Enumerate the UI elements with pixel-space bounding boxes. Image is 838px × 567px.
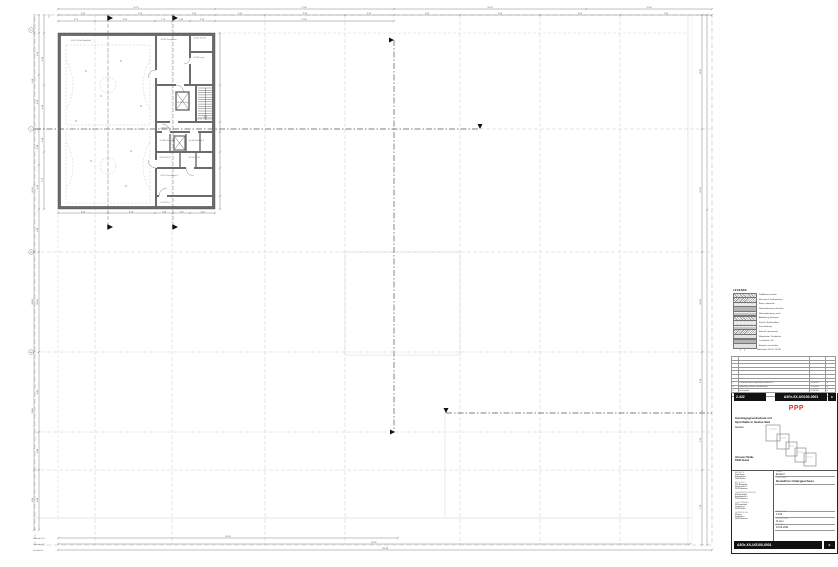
room-label: -1.E.12 Geräteraum 2 — [160, 174, 178, 177]
elevator-shaft — [176, 92, 189, 110]
project-address: Ahnsener Straße 30926 Seelze — [735, 457, 753, 463]
hatch-swatch — [733, 343, 757, 348]
legend-title: LEGENDE — [733, 289, 805, 292]
dim-text: 12.30 — [32, 187, 34, 193]
dim-row-label: Gebäude EG — [33, 544, 45, 546]
title-block: 2-432 A3Gr-XX-UG100-0001 c PPP Ganztagsg… — [731, 393, 838, 554]
party-block: TRAGWERKSPLANUNG IB Statik GmbH Bahnhofs… — [735, 493, 771, 500]
section-arrow — [478, 124, 483, 129]
dimension-chains — [33, 8, 713, 551]
section-arrow — [444, 408, 449, 413]
room-label: -1.E.09 Umkleide 2 — [188, 140, 204, 142]
axis-bubble-label: C — [30, 129, 32, 131]
key-plan — [760, 423, 832, 467]
room-label: -1.E.02 Geräteraum — [160, 38, 177, 41]
equipment-marks — [75, 60, 142, 187]
room-label: -1.E.07 Flur — [160, 127, 170, 130]
room-labels: -1.E.01 2-Feld-Sporthalle -1.E.02 Geräte… — [70, 38, 214, 205]
ppp-logo: PPP — [789, 405, 804, 412]
drawn-value: th.sem — [776, 520, 834, 523]
section-arrow — [390, 430, 395, 435]
title-fields: PHASE Entwurf PLANINHALT Grundriss Unter… — [775, 471, 835, 531]
legend-label: Abdichtung, bituminös — [759, 317, 779, 319]
room-label: -1.E.06 Aufzug — [176, 101, 188, 104]
dim-text: 15.70 — [133, 7, 139, 9]
legend-label: Wärmedämmung, weich — [759, 313, 781, 315]
axis-grid — [35, 15, 712, 545]
drawing-number-top: A3Gr-XX-UG100-0001 — [775, 393, 827, 401]
revision-table: c Planstand Entwurf, Anpassung Grundriss… — [731, 356, 836, 397]
dim-text: 11.80 — [32, 408, 34, 414]
revision-badge-bottom: c — [824, 541, 835, 549]
axis-bubble-label: A — [30, 351, 32, 354]
dim-text: 12.30 — [700, 187, 702, 193]
stair — [198, 88, 213, 120]
field-value: Entwurf — [776, 473, 834, 476]
dim-text: 45.36 — [225, 536, 231, 538]
legend-label: Beton, unbewehrt — [759, 303, 775, 305]
dim-text: 112.88 — [382, 548, 389, 550]
legend-label: Bestand, unverändert — [759, 345, 778, 347]
field-date: DATUM 13.04.2021 — [775, 525, 835, 531]
dim-row-label: Gebäude UG — [33, 538, 45, 540]
dim-text: 12.40 — [646, 7, 652, 9]
scale-value: 1:100 — [776, 513, 834, 516]
divider — [773, 470, 774, 541]
section-lines — [35, 16, 712, 435]
party-block: VERMESSUNG VB Nord Feldstraße 5 30449 Ha… — [735, 513, 771, 520]
room-label: -1.E.10 WC-D — [159, 157, 171, 159]
room-label: -1.E.13 Flur — [160, 201, 170, 204]
dim-text: 11.40 — [700, 69, 702, 75]
party-line: 30159 Hannover — [735, 498, 771, 500]
legend-label: Mauerwerk, Kalksandstein — [759, 299, 782, 301]
room-label: -1.E.03 Technik — [193, 38, 206, 40]
room-label: -1.E.11 WC-H — [188, 157, 200, 159]
room-label: -1.E.01 2-Feld-Sporthalle — [70, 39, 91, 42]
axis-bubble-label: B — [30, 252, 32, 254]
interior-walls — [156, 34, 213, 208]
address-city: 30926 Seelze — [735, 460, 753, 463]
field-spacer — [775, 485, 835, 512]
legend-label: Kiesschüttung — [759, 326, 772, 328]
dim-text: 17.90 — [301, 19, 307, 21]
axis-bubble-label: D — [30, 30, 32, 32]
party-line: 30159 Hannover — [735, 488, 771, 490]
legend-label: Stahlbeton, bewehrt — [759, 294, 777, 296]
legend-label: Estrich / Bodenaufbau — [759, 322, 779, 324]
dim-text: 17.90 — [301, 7, 307, 9]
room-label: -1.E.04 Lager — [193, 56, 205, 59]
building: -1.E.01 2-Feld-Sporthalle -1.E.02 Geräte… — [58, 33, 215, 209]
dot-symbols: •• — [733, 349, 755, 352]
legend: LEGENDE Stahlbeton, bewehrt Mauerwerk, K… — [733, 289, 805, 353]
drawing-title: Grundriss Untergeschoss — [776, 479, 834, 483]
party-line: 30449 Hannover — [735, 518, 771, 520]
dim-text: 10.00 — [700, 299, 702, 305]
party-block: BAUHERR Stadt Seelze Rathausplatz 1 3092… — [735, 473, 771, 480]
legend-label: Trockenbau, GK — [759, 340, 774, 342]
revision-badge-top: c — [828, 393, 836, 401]
dim-text: 10.00 — [37, 299, 39, 305]
sheet-code: 2-432 — [734, 393, 766, 401]
party-line: 30926 Seelze — [735, 478, 771, 480]
shaft — [174, 136, 185, 150]
legend-label: Erdreich, gewachsen — [759, 331, 778, 333]
dim-row-label: Grundstück — [33, 549, 43, 552]
party-block: ARCHITEKT PPP Architekten Musterstraße 1… — [735, 483, 771, 490]
drawing-sheet: D C B A — [0, 0, 838, 567]
field-content: PLANINHALT Grundriss Untergeschoss — [775, 477, 835, 484]
legend-label: Magerbeton / Sauberkeit — [759, 336, 781, 338]
dim-text: 10.00 — [32, 299, 34, 305]
room-label: -1.E.05 Treppenraum — [196, 118, 214, 121]
room-label: -1.E.08 Umkleide 1 — [159, 140, 175, 142]
legend-label: Wärmedämmung, druckfest — [759, 308, 784, 310]
date-value: 13.04.2021 — [776, 526, 834, 529]
dim-text: 84.52 — [371, 542, 377, 544]
site-outlines — [35, 15, 712, 545]
legend-label: Höhenkote OK FF / OK RF — [757, 349, 781, 351]
project-parties: BAUHERR Stadt Seelze Rathausplatz 1 3092… — [735, 473, 771, 523]
party-block: TGA-PLANUNG PB Haustechnik Gartenweg 3 3… — [735, 503, 771, 510]
legend-row: ••Höhenkote OK FF / OK RF — [733, 348, 805, 353]
section-arrow — [389, 38, 394, 43]
drawing-number-bottom: A3Gr-XX-UG100-0001 — [734, 541, 822, 549]
plan-drawing: D C B A — [0, 0, 838, 567]
dim-text: 19.20 — [487, 7, 493, 9]
party-line: 30926 Seelze — [735, 508, 771, 510]
